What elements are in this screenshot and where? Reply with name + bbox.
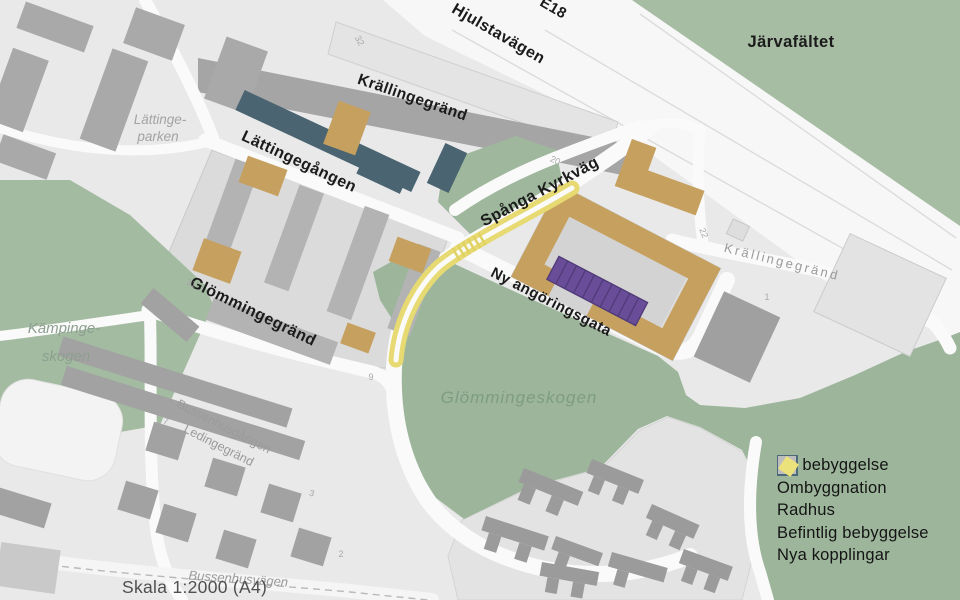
- area-label-kampingeskogen-1: Kämpinge-: [28, 320, 101, 337]
- plan-map-canvas: Hjulstavägen E18 Krällingegränd Lättinge…: [0, 0, 960, 600]
- legend-label: Radhus: [777, 502, 835, 519]
- legend: Ny bebyggelse Ombyggnation Radhus Befint…: [777, 455, 929, 566]
- legend-item-befintlig-bebyggelse: Befintlig bebyggelse: [777, 523, 929, 544]
- house-number-1: 1: [764, 292, 769, 302]
- legend-item-radhus: Radhus: [777, 500, 929, 521]
- house-number-9: 9: [368, 372, 373, 382]
- house-number-2: 2: [338, 549, 343, 559]
- legend-item-ombyggnation: Ombyggnation: [777, 478, 929, 499]
- legend-label: Ombyggnation: [777, 480, 887, 497]
- legend-swatch-nya-kopplingar-diamond-icon: [777, 455, 800, 478]
- legend-item-nya-kopplingar: Nya kopplingar: [777, 545, 929, 566]
- area-label-glommingeskogen: Glömmingeskogen: [441, 388, 598, 407]
- area-label-lattingeparken-1: Lättinge-: [134, 112, 187, 127]
- area-label-lattingeparken-2: parken: [136, 129, 178, 144]
- legend-label: Befintlig bebyggelse: [777, 525, 929, 542]
- area-label-kampingeskogen-2: skogen: [42, 348, 90, 365]
- legend-label: Nya kopplingar: [777, 547, 890, 564]
- scale-label: Skala 1:2000 (A4): [122, 577, 267, 598]
- area-label-jarvafaltet: Järvafältet: [748, 33, 835, 51]
